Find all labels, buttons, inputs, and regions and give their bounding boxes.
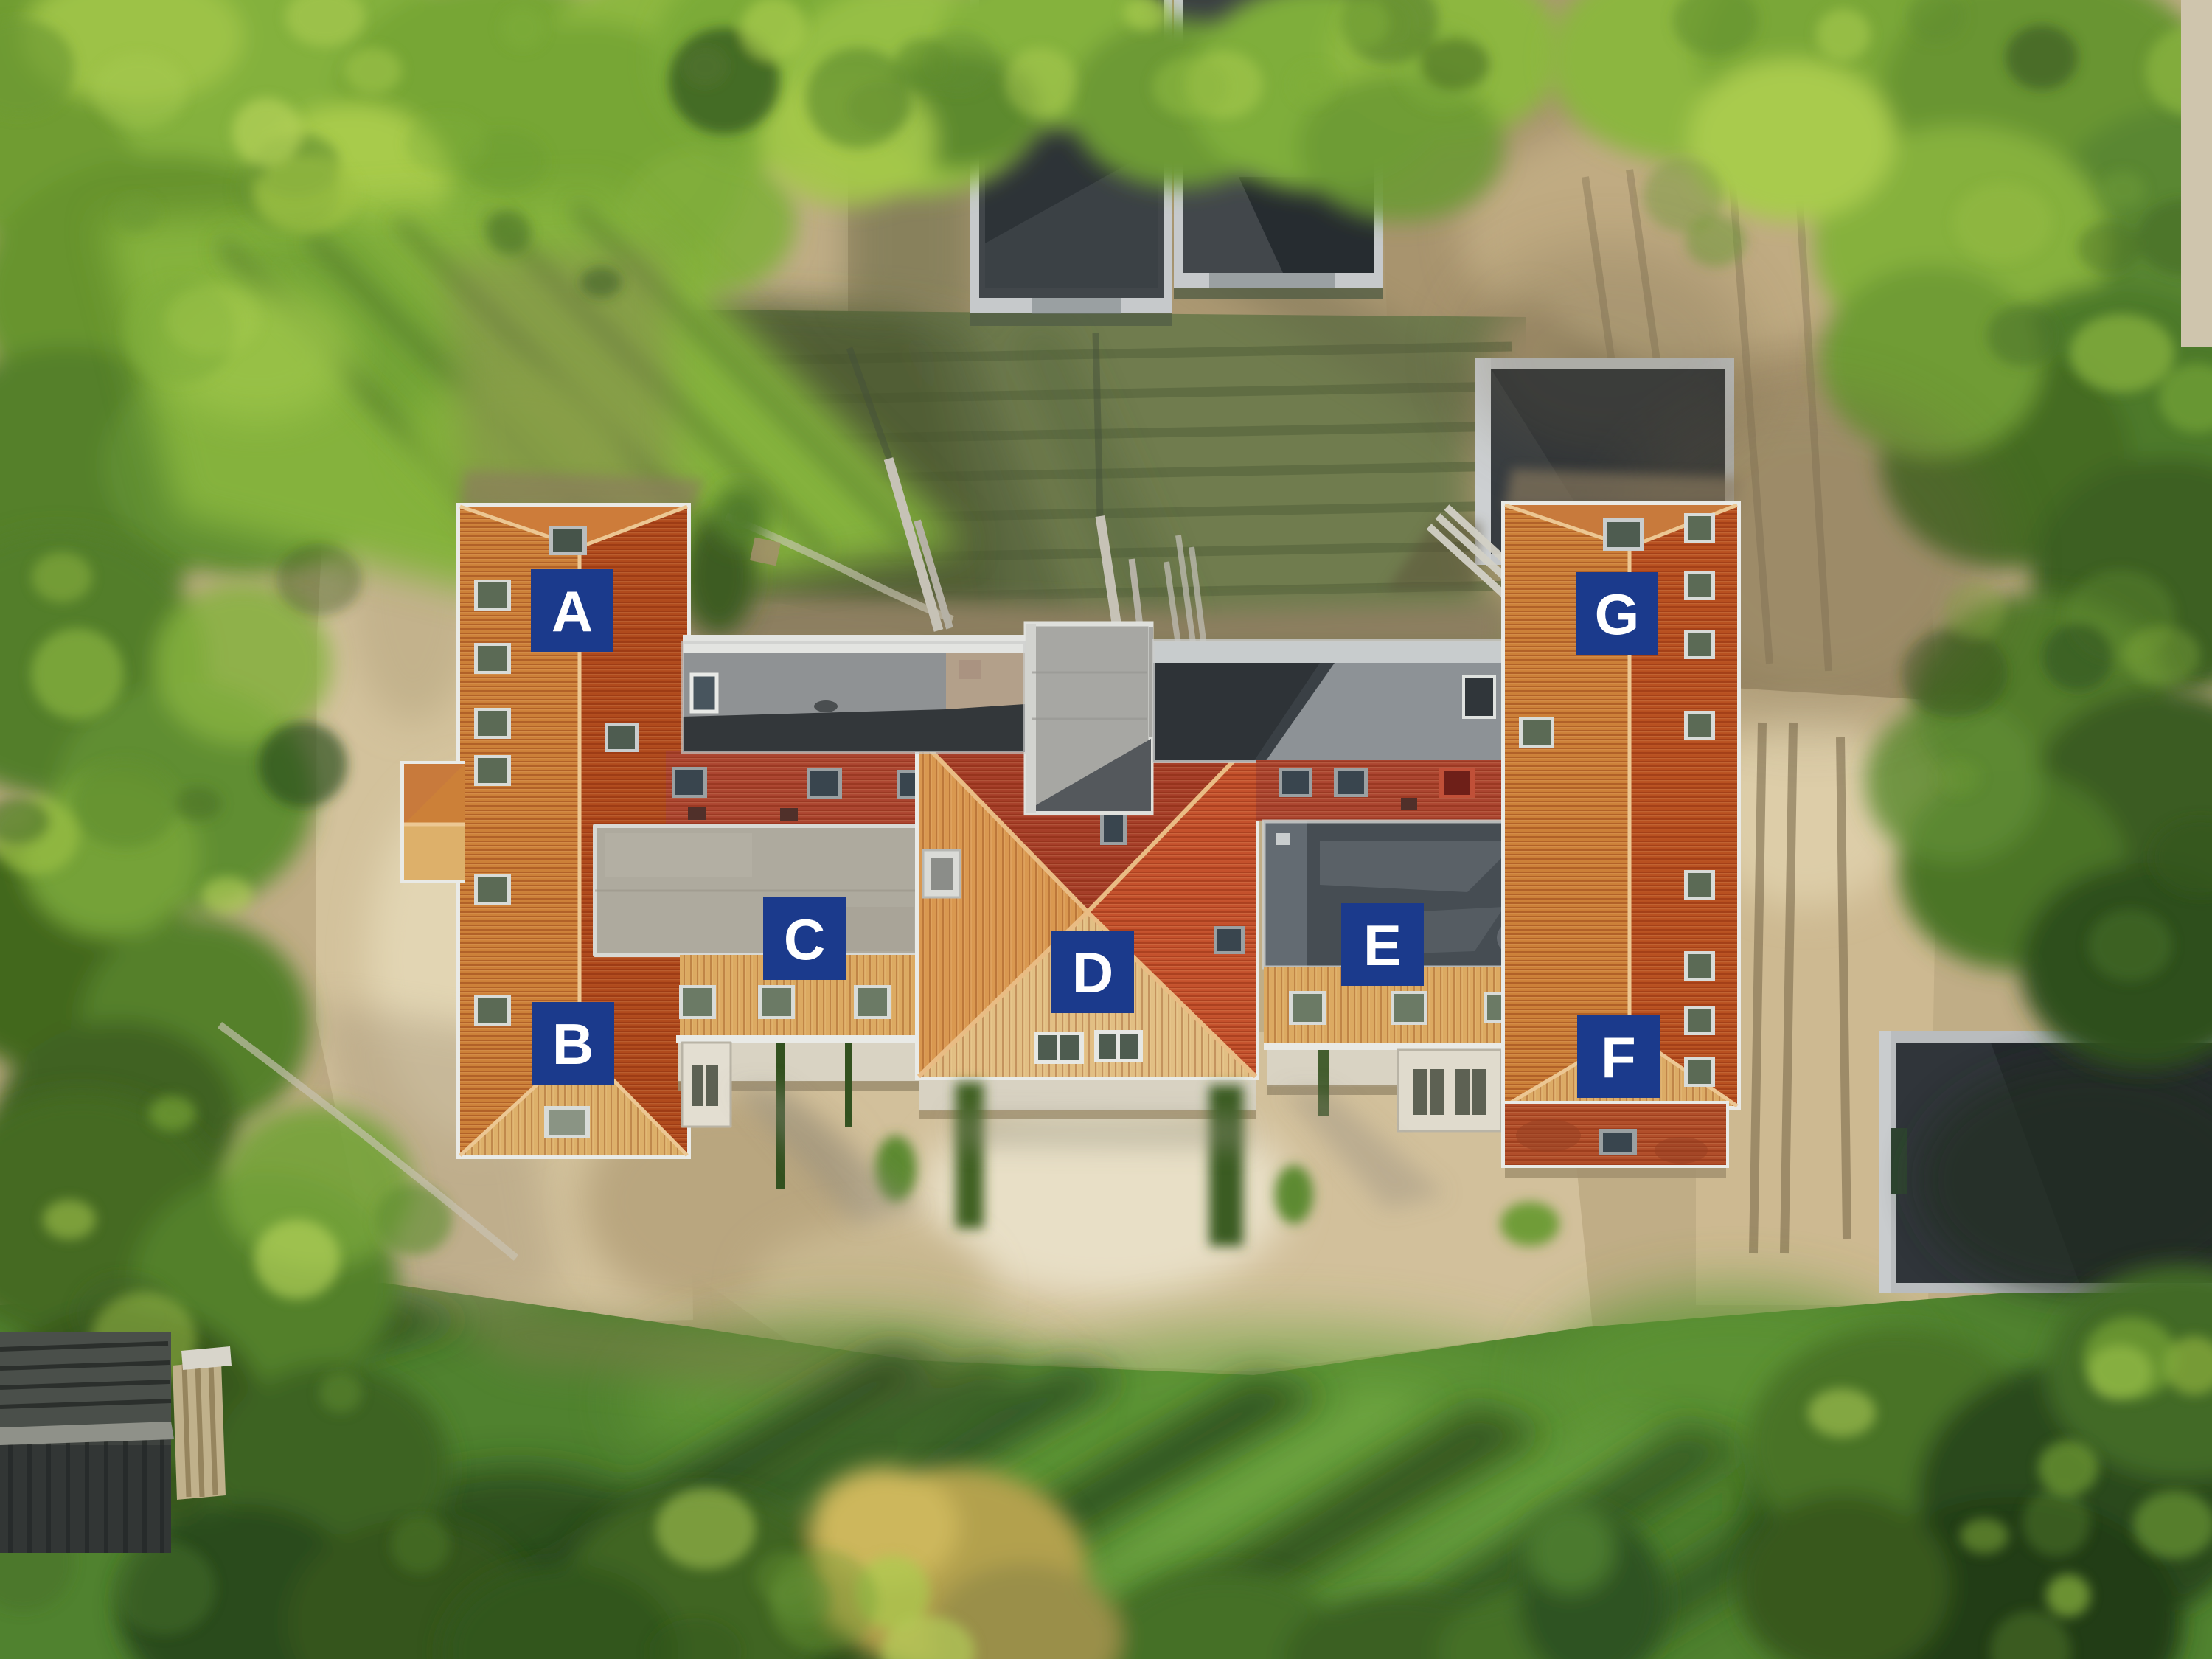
svg-text:E: E bbox=[1363, 913, 1402, 978]
svg-text:B: B bbox=[552, 1012, 594, 1077]
svg-text:F: F bbox=[1601, 1025, 1636, 1090]
svg-text:A: A bbox=[552, 579, 593, 644]
svg-text:C: C bbox=[784, 907, 825, 972]
svg-text:D: D bbox=[1072, 940, 1113, 1005]
svg-text:G: G bbox=[1595, 582, 1640, 647]
